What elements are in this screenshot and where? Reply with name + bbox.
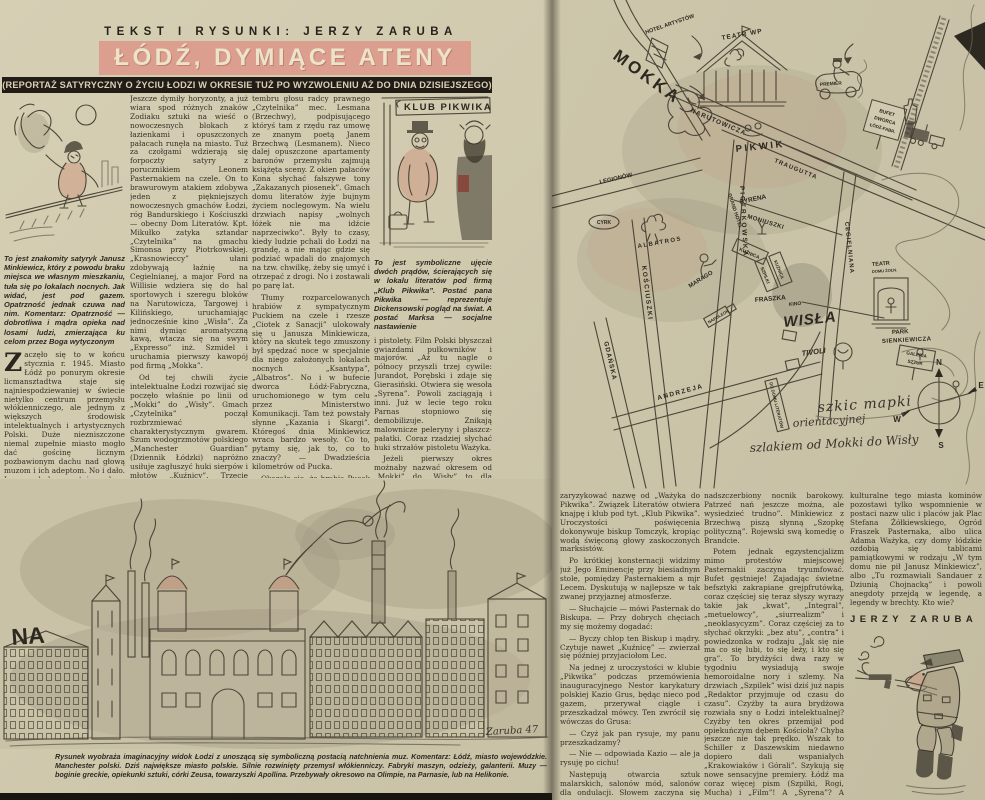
wazyk-figure bbox=[856, 636, 965, 794]
kicker: TEKST I RYSUNKI: JERZY ZARUBA bbox=[92, 26, 470, 38]
hotel-building-doodle bbox=[646, 38, 668, 68]
svg-text:szlakiem od Mokki do Wisły: szlakiem od Mokki do Wisły bbox=[749, 432, 919, 455]
svg-text:PARK: PARK bbox=[892, 329, 910, 336]
svg-text:S: S bbox=[938, 441, 944, 450]
svg-text:W: W bbox=[893, 415, 901, 424]
na-sign: NA bbox=[11, 622, 46, 650]
col4-caption: To jest symboliczne ujęcie dwóch prądów,… bbox=[374, 258, 492, 332]
tightrope-walker-illustration bbox=[4, 95, 125, 247]
paragraph: Tłumy rozparcelowanych hrabiów z sympaty… bbox=[252, 294, 370, 472]
paragraph: Po krótkiej konsternacji widzimy już Jeg… bbox=[560, 557, 700, 602]
map-sketch: MOKKA HOTEL ARTYSTÓW TEATR WP bbox=[552, 0, 985, 490]
wazyk-caricature bbox=[850, 629, 982, 797]
paragraph: Następują otwarcia sztuk malarskich, sal… bbox=[560, 771, 700, 798]
title-band: ŁÓDŹ, DYMIĄCE ATENY bbox=[99, 41, 471, 75]
paragraph: — Czyż jak pan rysuje, my panu przeszkad… bbox=[560, 730, 700, 748]
svg-text:CYRK: CYRK bbox=[597, 220, 612, 226]
paragraph: Okazało się, że hrabia Pucek gdzieś wyje… bbox=[252, 475, 370, 478]
galeria-sign: GALERIA SZTUK bbox=[894, 345, 935, 383]
smoke-swirl bbox=[871, 636, 884, 647]
left-column-2: Jeszcze dymiły horyzonty, a już wiara sp… bbox=[130, 95, 248, 478]
route-swirls bbox=[857, 5, 980, 484]
left-page: TEKST I RYSUNKI: JERZY ZARUBA ŁÓDŹ, DYMI… bbox=[0, 0, 552, 800]
magazine-spread: TEKST I RYSUNKI: JERZY ZARUBA ŁÓDŹ, DYMI… bbox=[0, 0, 985, 800]
page-gutter bbox=[543, 0, 561, 800]
page-title: ŁÓDŹ, DYMIĄCE ATENY bbox=[99, 41, 471, 75]
city-silhouette bbox=[102, 161, 118, 187]
map-label-hotel-artystow: HOTEL ARTYSTÓW bbox=[644, 11, 696, 36]
paragraph: Jeszcze dymiły horyzonty, a już wiara sp… bbox=[130, 95, 248, 371]
col1-caption: To jest znakomity satyryk Janusz Minkiew… bbox=[4, 254, 125, 346]
subtitle-bar: (REPORTAŻ SATYRYCZNY O ŻYCIU ŁODZI W OKR… bbox=[2, 77, 492, 93]
svg-text:E: E bbox=[978, 381, 984, 390]
right-column-1: zaryzykować nazwę od „Ważyka do Pikwika”… bbox=[560, 492, 700, 798]
teatr-dz: TEATR DOMU ŻOŁN. bbox=[872, 261, 910, 328]
right-page: MOKKA HOTEL ARTYSTÓW TEATR WP bbox=[552, 0, 985, 800]
paragraph: zaryzykować nazwę od „Ważyka do Pikwika”… bbox=[560, 492, 700, 554]
left-column-1: To jest znakomity satyryk Janusz Minkiew… bbox=[4, 95, 125, 478]
paragraph: Jeżeli pierwszy okres możnaby nazwać okr… bbox=[374, 455, 492, 478]
paragraph: Na jednej z uroczystości w klubie „Pikwi… bbox=[560, 664, 700, 726]
svg-text:TEATR: TEATR bbox=[872, 261, 890, 268]
page-corner-fold bbox=[954, 22, 985, 70]
svg-text:N: N bbox=[936, 358, 942, 367]
svg-text:orientacyjnej: orientacyjnej bbox=[792, 412, 866, 430]
paragraph: kulturalne tego miasta kominów pozostawi… bbox=[850, 492, 982, 608]
author-byline: JERZY ZARUBA bbox=[850, 614, 982, 625]
left-column-3: tembru głosu radcy prawnego „Czytelnika”… bbox=[252, 95, 370, 478]
tivoli-round-sign bbox=[834, 343, 852, 369]
klub-pikwika-sign: KLUB PIKWIKA bbox=[404, 102, 492, 113]
smoke-swirl bbox=[858, 652, 868, 660]
right-column-2: nadszczerbiony nocnik barokowy. Patrzeć … bbox=[704, 492, 844, 798]
scan-edge bbox=[0, 793, 552, 800]
klub-pikwika-illustration: KLUB PIKWIKA bbox=[374, 95, 492, 250]
pickwick-figure bbox=[389, 121, 438, 229]
paragraph: Zaczęło się to w końcu stycznia r. 1945.… bbox=[4, 351, 125, 478]
svg-text:GALERIA: GALERIA bbox=[906, 350, 928, 359]
railway bbox=[892, 16, 949, 170]
marx-figure bbox=[456, 121, 492, 240]
poster-doodle bbox=[785, 359, 800, 371]
paragraph: tembru głosu radcy prawnego „Czytelnika”… bbox=[252, 95, 370, 291]
paragraph: — Byczy chłop ten Biskup i mądry. Czytuj… bbox=[560, 635, 700, 662]
paragraph: i pistolety. Film Polski błyszczał gwiaz… bbox=[374, 337, 492, 453]
train-icon bbox=[903, 120, 947, 151]
paragraph: — Słuchajcie — mówi Pasternak do Biskupa… bbox=[560, 605, 700, 632]
svg-text:SIENKIEWICZA: SIENKIEWICZA bbox=[882, 336, 932, 345]
svg-text:SZTUK: SZTUK bbox=[907, 359, 924, 367]
right-column-3: kulturalne tego miasta kominów pozostawi… bbox=[850, 492, 982, 798]
paragraph: Potem jednak egzystencjalizm mimo protes… bbox=[704, 548, 844, 798]
music-note-icon bbox=[397, 101, 400, 107]
map-label-legionow: LEGIONÓW bbox=[599, 171, 634, 186]
left-column-4: KLUB PIKWIKA bbox=[374, 95, 492, 478]
paragraph: — Nie — odpowiada Kazio — ale ja rysuję … bbox=[560, 750, 700, 768]
svg-text:DOMU ŻOŁN.: DOMU ŻOŁN. bbox=[872, 267, 898, 274]
paragraph: Od tej chwili życie intelektualne Łodzi … bbox=[130, 374, 248, 478]
lodz-city-illustration: NA bbox=[0, 479, 552, 749]
main-illustration-caption: Rysunek wyobraża imaginacyjny widok Łodz… bbox=[55, 752, 547, 790]
map-label-gdanska: GDAŃSKA bbox=[602, 340, 620, 381]
paragraph: nadszczerbiony nocnik barokowy. Patrzeć … bbox=[704, 492, 844, 545]
poster-doodle bbox=[782, 330, 796, 341]
